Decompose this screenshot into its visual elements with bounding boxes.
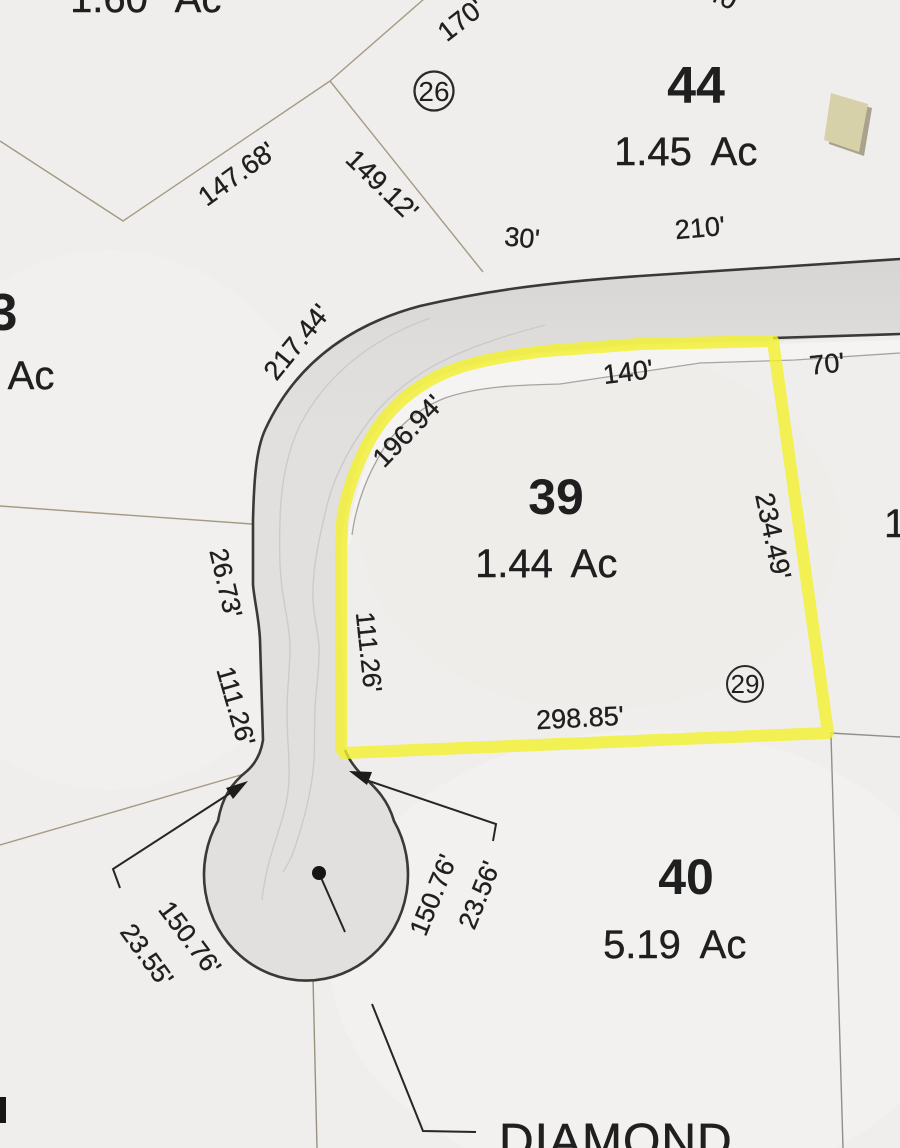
svg-text:70': 70' xyxy=(808,347,846,381)
svg-text:1.44: 1.44 xyxy=(475,542,553,586)
svg-text:1.60: 1.60 xyxy=(70,0,148,21)
svg-text:Ac: Ac xyxy=(700,923,747,967)
svg-text:44: 44 xyxy=(667,57,725,115)
svg-text:40: 40 xyxy=(658,849,714,905)
svg-text:39: 39 xyxy=(528,469,584,525)
svg-text:29: 29 xyxy=(731,669,760,699)
svg-text:210': 210' xyxy=(674,211,727,245)
svg-text:1.45: 1.45 xyxy=(614,130,692,174)
svg-text:Ac: Ac xyxy=(8,354,55,398)
svg-text:5.19: 5.19 xyxy=(603,923,681,967)
svg-text:Ac: Ac xyxy=(175,0,222,21)
svg-text:30': 30' xyxy=(503,222,541,255)
svg-text:Ac: Ac xyxy=(711,130,758,174)
svg-text:1.4: 1.4 xyxy=(884,502,900,546)
svg-text:26: 26 xyxy=(418,76,449,107)
svg-text:140': 140' xyxy=(601,354,654,390)
svg-text:298.85': 298.85' xyxy=(535,701,624,736)
svg-text:3: 3 xyxy=(0,284,17,342)
svg-text:Ac: Ac xyxy=(571,542,618,586)
svg-text:DIAMOND: DIAMOND xyxy=(499,1115,733,1148)
